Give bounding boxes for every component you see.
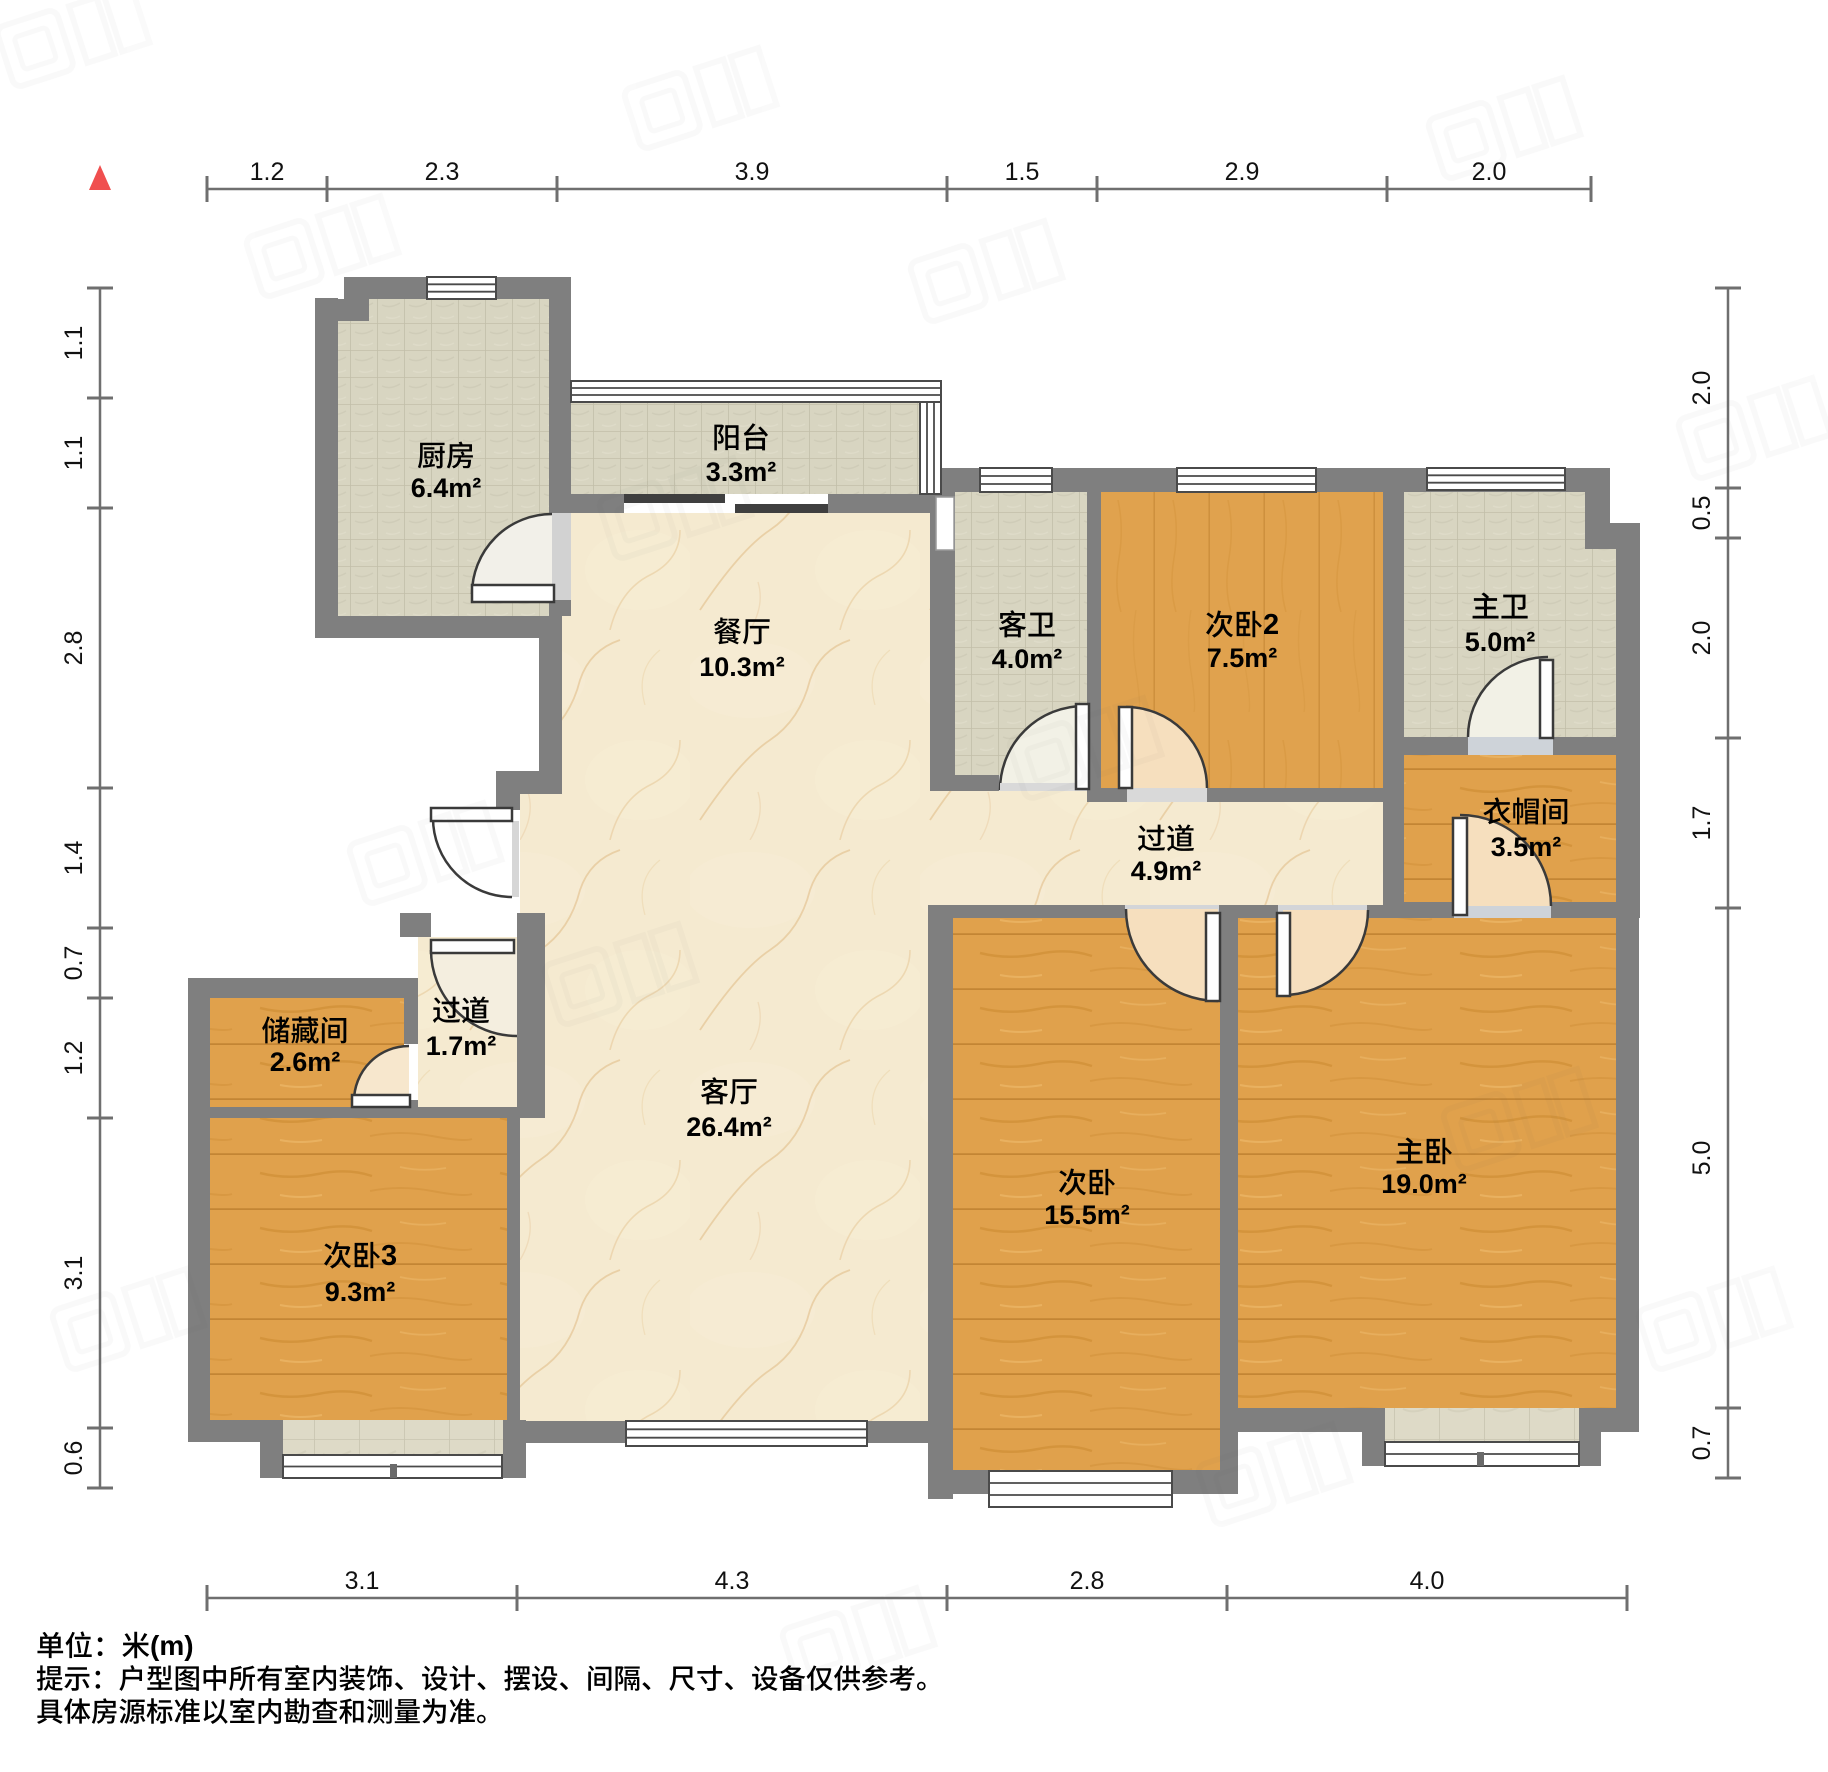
svg-text:1.2: 1.2 bbox=[60, 1041, 88, 1076]
svg-text:10.3m²: 10.3m² bbox=[699, 652, 785, 682]
svg-text:2: 2 bbox=[1263, 609, 1279, 641]
svg-text:1.5: 1.5 bbox=[1005, 158, 1040, 186]
svg-text:0.7: 0.7 bbox=[1688, 1426, 1716, 1461]
svg-text:1.1: 1.1 bbox=[60, 326, 88, 361]
svg-text:2.6m²: 2.6m² bbox=[270, 1047, 341, 1077]
svg-text:0.5: 0.5 bbox=[1688, 496, 1716, 531]
svg-text:26.4m²: 26.4m² bbox=[686, 1112, 772, 1142]
svg-text:2.0: 2.0 bbox=[1688, 371, 1716, 406]
svg-text:3.1: 3.1 bbox=[60, 1256, 88, 1291]
svg-text:0.6: 0.6 bbox=[60, 1441, 88, 1476]
svg-text:5.0m²: 5.0m² bbox=[1465, 627, 1536, 657]
svg-text:2.8: 2.8 bbox=[60, 631, 88, 666]
svg-text:9.3m²: 9.3m² bbox=[325, 1277, 396, 1307]
svg-text:0.7: 0.7 bbox=[60, 946, 88, 981]
svg-text:5.0: 5.0 bbox=[1688, 1141, 1716, 1176]
svg-text:15.5m²: 15.5m² bbox=[1044, 1200, 1130, 1230]
svg-text:1.7: 1.7 bbox=[1688, 806, 1716, 841]
svg-text:4.0: 4.0 bbox=[1410, 1567, 1445, 1595]
svg-text:4.9m²: 4.9m² bbox=[1131, 856, 1202, 886]
svg-text:3: 3 bbox=[381, 1240, 397, 1272]
svg-text:1.2: 1.2 bbox=[250, 158, 285, 186]
svg-text:2.8: 2.8 bbox=[1070, 1567, 1105, 1595]
svg-text:(m): (m) bbox=[150, 1630, 194, 1661]
svg-text:6.4m²: 6.4m² bbox=[411, 473, 482, 503]
svg-text:3.5m²: 3.5m² bbox=[1491, 832, 1562, 862]
svg-text:3.1: 3.1 bbox=[345, 1567, 380, 1595]
svg-text:1.7m²: 1.7m² bbox=[426, 1031, 497, 1061]
svg-text:2.0: 2.0 bbox=[1688, 621, 1716, 656]
svg-text:1.4: 1.4 bbox=[60, 841, 88, 876]
svg-text:7.5m²: 7.5m² bbox=[1207, 643, 1278, 673]
svg-text:19.0m²: 19.0m² bbox=[1381, 1169, 1467, 1199]
svg-text:3.9: 3.9 bbox=[735, 158, 770, 186]
svg-text:1.1: 1.1 bbox=[60, 436, 88, 471]
svg-text:2.9: 2.9 bbox=[1225, 158, 1260, 186]
svg-text:4.3: 4.3 bbox=[715, 1567, 750, 1595]
svg-text:2.3: 2.3 bbox=[425, 158, 460, 186]
svg-text:4.0m²: 4.0m² bbox=[992, 644, 1063, 674]
